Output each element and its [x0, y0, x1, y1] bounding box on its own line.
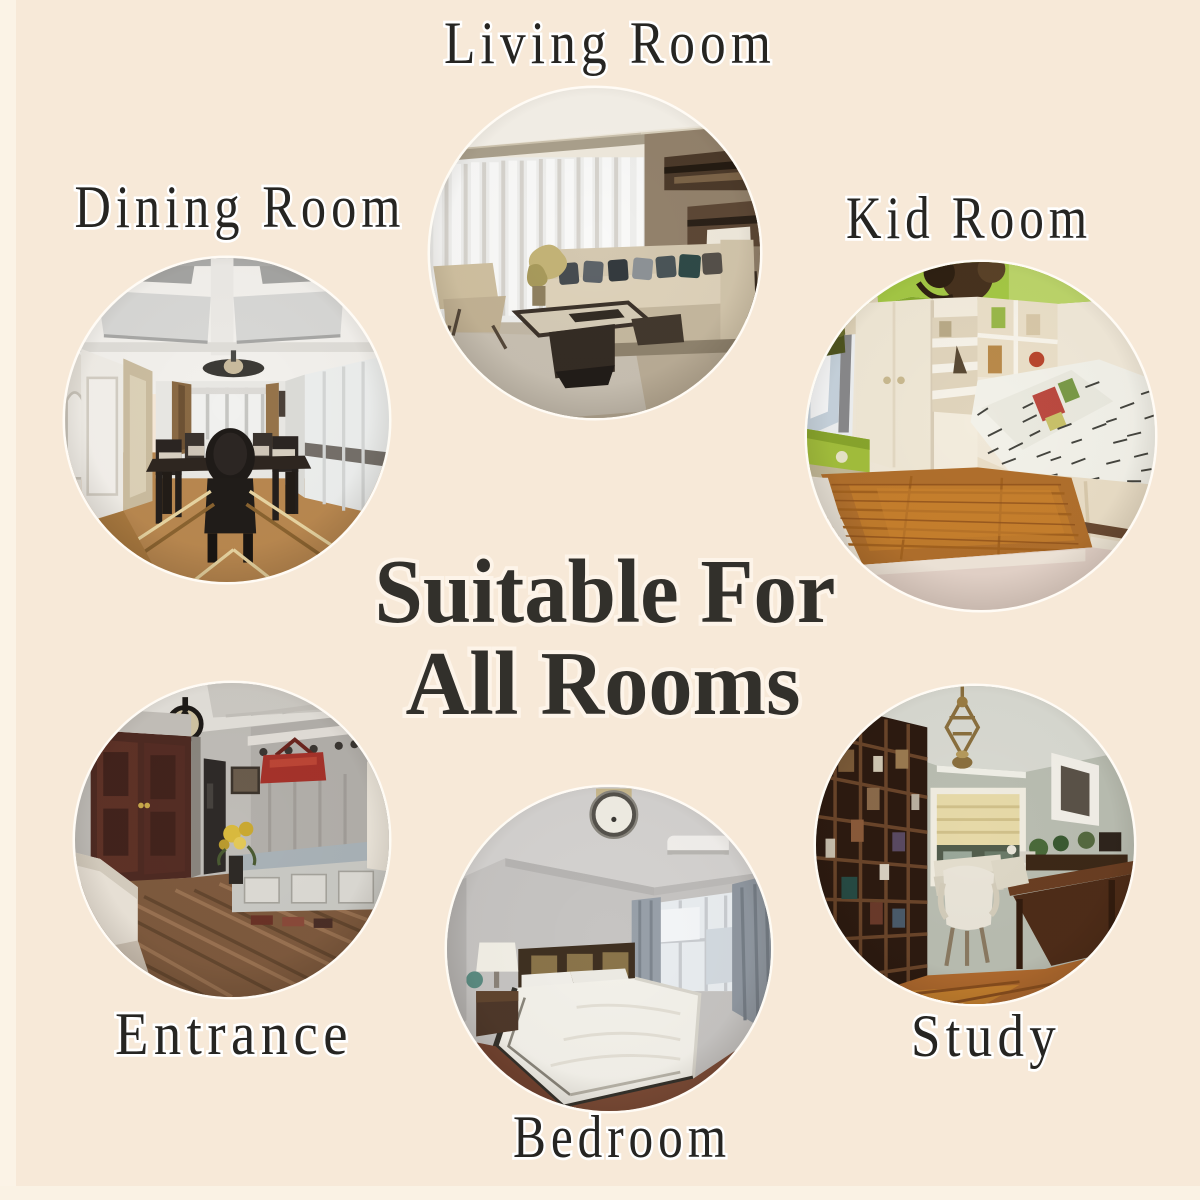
svg-text:Dining Room: Dining Room	[75, 174, 406, 240]
svg-text:Kid Room: Kid Room	[846, 185, 1092, 251]
svg-text:Suitable For: Suitable For	[375, 541, 836, 642]
svg-text:Living Room: Living Room	[444, 10, 776, 76]
svg-text:All Rooms: All Rooms	[406, 633, 801, 734]
svg-text:Bedroom: Bedroom	[513, 1104, 731, 1170]
svg-text:Study: Study	[911, 1003, 1061, 1069]
svg-text:Entrance: Entrance	[115, 1001, 353, 1067]
